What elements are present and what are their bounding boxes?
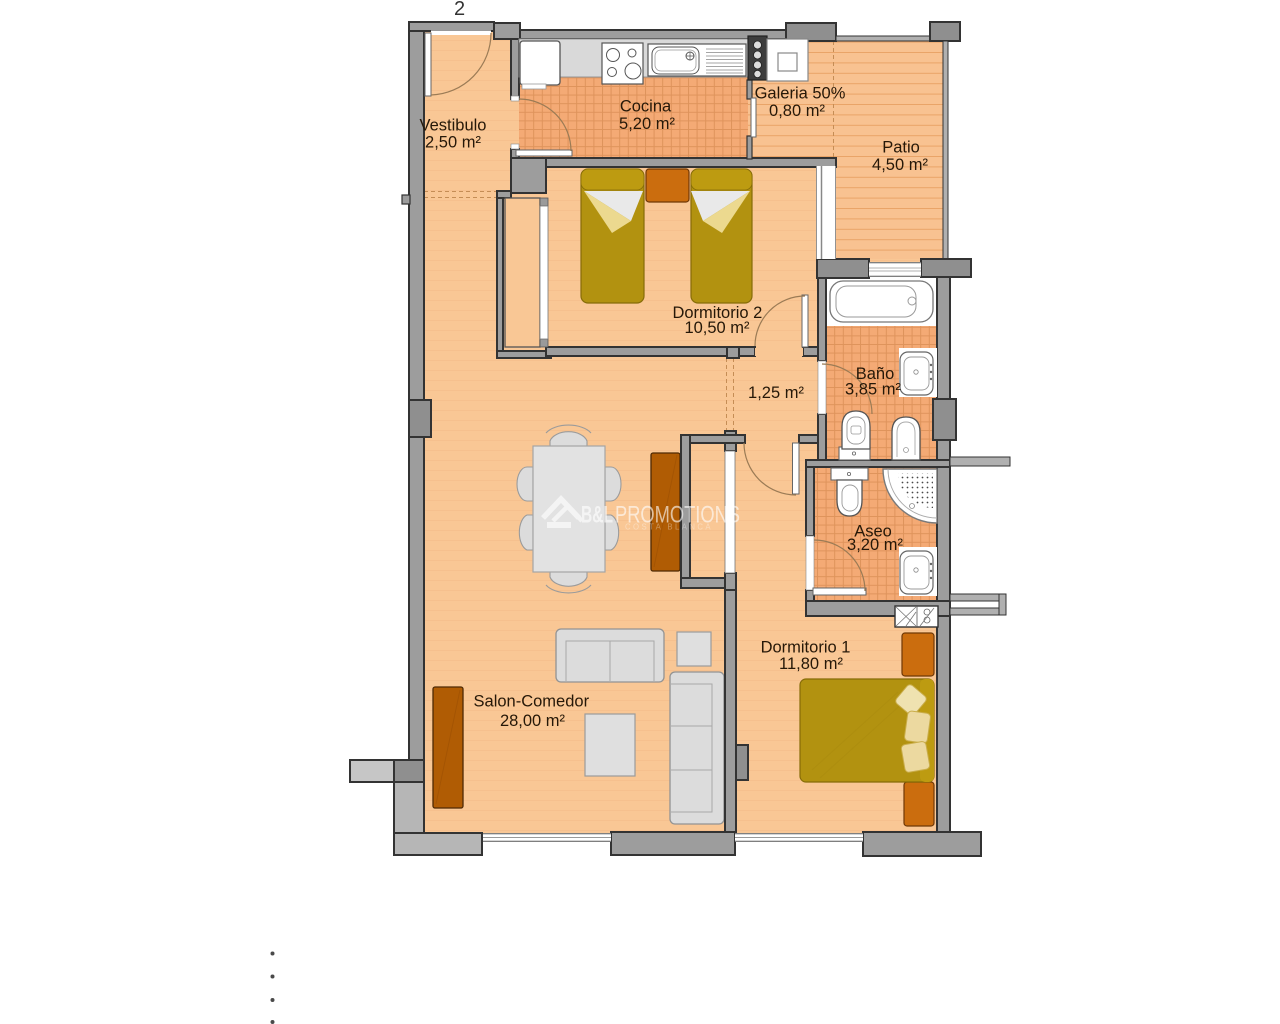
- svg-text:Salon-Comedor: Salon-Comedor: [474, 693, 590, 711]
- svg-text:Dormitorio 1: Dormitorio 1: [761, 639, 851, 657]
- svg-text:Galeria 50%: Galeria 50%: [755, 85, 846, 103]
- svg-text:2: 2: [454, 0, 465, 20]
- svg-text:B&L: B&L: [581, 502, 613, 529]
- svg-text:1,25 m²: 1,25 m²: [748, 384, 804, 402]
- svg-text:11,80 m²: 11,80 m²: [779, 655, 843, 673]
- svg-text:0,80 m²: 0,80 m²: [769, 102, 825, 120]
- svg-text:2,50 m²: 2,50 m²: [425, 134, 481, 152]
- svg-text:Vestibulo: Vestibulo: [420, 117, 487, 135]
- svg-text:COSTA BLANCA: COSTA BLANCA: [625, 523, 713, 532]
- svg-text:Patio: Patio: [882, 139, 920, 157]
- svg-text:4,50 m²: 4,50 m²: [872, 156, 928, 174]
- svg-text:3,20 m²: 3,20 m²: [847, 536, 903, 554]
- svg-text:Cocina: Cocina: [620, 98, 672, 116]
- svg-text:5,20 m²: 5,20 m²: [619, 115, 675, 133]
- svg-text:28,00 m²: 28,00 m²: [500, 712, 566, 730]
- svg-text:3,85 m²: 3,85 m²: [845, 381, 901, 399]
- svg-text:10,50 m²: 10,50 m²: [684, 319, 750, 337]
